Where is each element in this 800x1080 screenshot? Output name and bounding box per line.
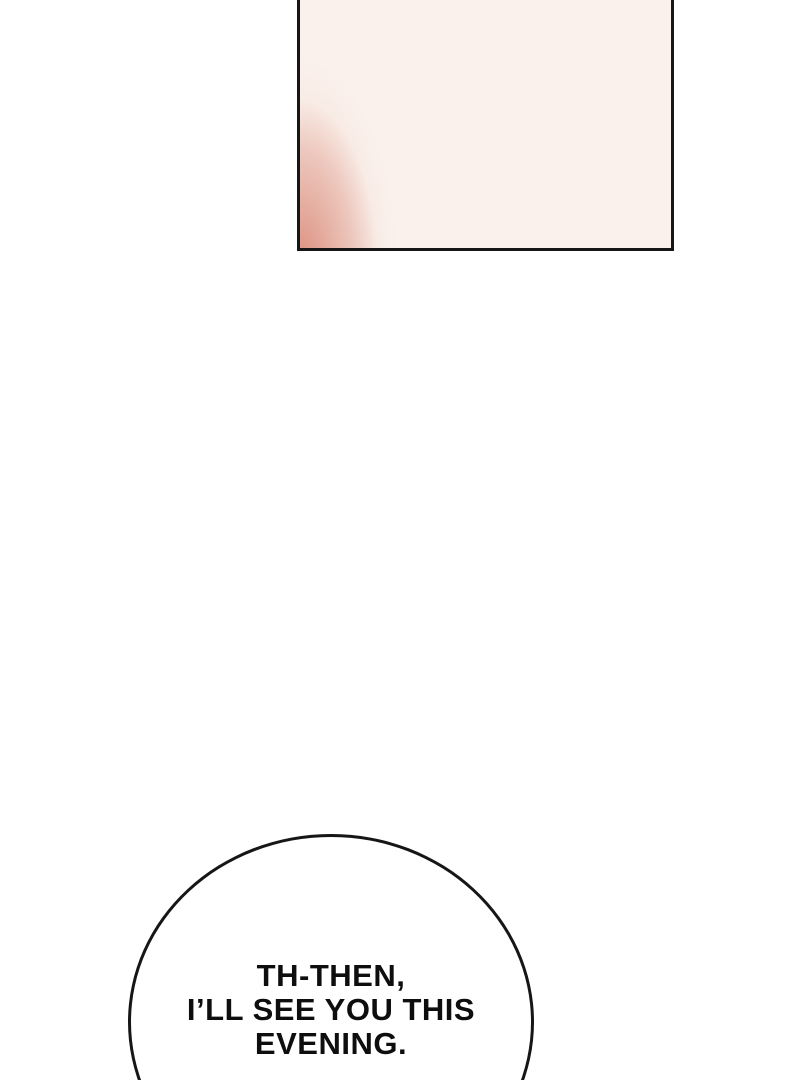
comic-panel <box>297 0 674 251</box>
comic-page: TH-THEN, I’LL SEE YOU THIS EVENING. <box>0 0 800 1080</box>
speech-bubble: TH-THEN, I’LL SEE YOU THIS EVENING. <box>128 834 534 1080</box>
speech-line-1: TH-THEN, <box>131 959 531 993</box>
speech-line-3: EVENING. <box>131 1027 531 1061</box>
speech-bubble-text: TH-THEN, I’LL SEE YOU THIS EVENING. <box>131 959 531 1061</box>
speech-line-2: I’LL SEE YOU THIS <box>131 993 531 1027</box>
panel-artwork-blush <box>300 0 671 248</box>
